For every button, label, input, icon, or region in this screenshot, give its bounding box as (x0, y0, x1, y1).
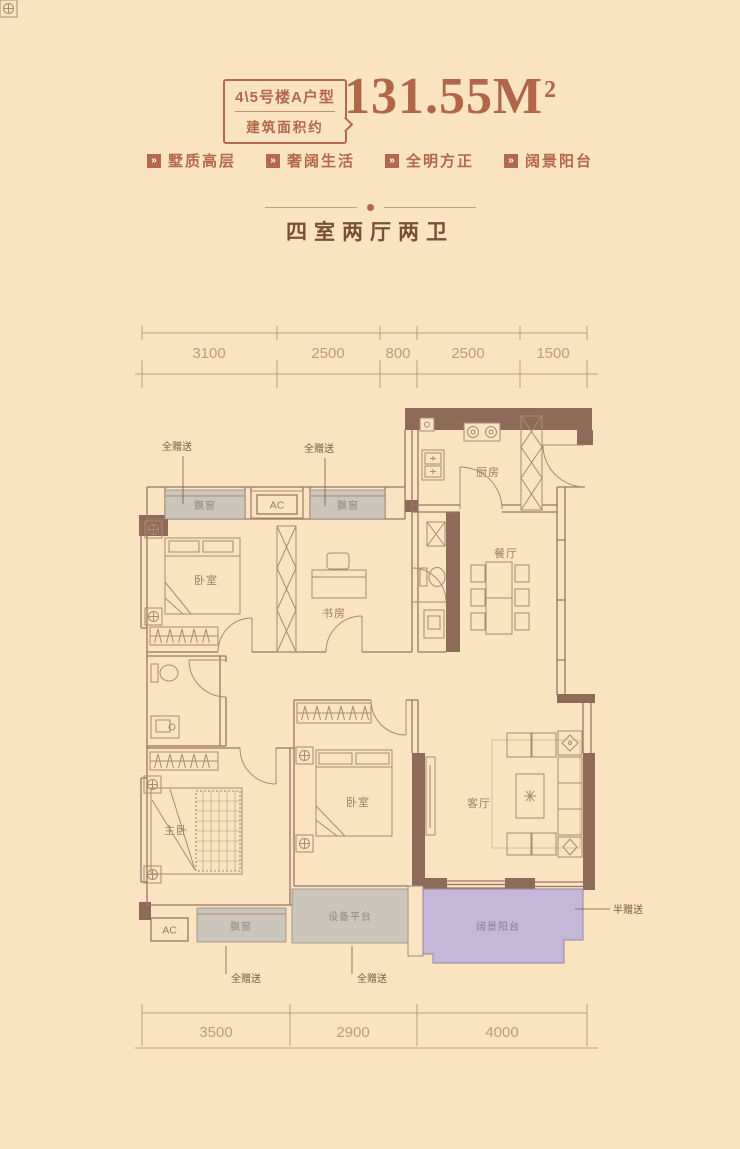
bathroom1-fixtures (420, 522, 445, 638)
vanity (424, 610, 444, 638)
plant-icon (524, 790, 536, 802)
wall-living-bottom-mid (505, 878, 535, 889)
bedroom2-label: 卧室 (346, 795, 370, 809)
ac-label: AC (162, 925, 177, 937)
bedroom2-furniture (297, 703, 392, 836)
bay-windows: 飘窗 飘窗 飘窗 设备平台 (165, 490, 408, 943)
ac-label: AC (270, 500, 285, 512)
chair (327, 553, 349, 569)
master-bedroom-label: 主卧 (164, 824, 188, 837)
bay-window-label: 飘窗 (194, 499, 216, 512)
living-label: 客厅 (467, 796, 491, 810)
entry-door (543, 445, 585, 487)
sofa-seat (507, 833, 531, 855)
toilet-tank (151, 664, 158, 682)
wall-bath1-right (446, 512, 460, 652)
study-furniture (312, 553, 366, 598)
balcony: 阔景阳台 (423, 889, 583, 963)
thick-walls (139, 408, 595, 920)
master-door (240, 748, 276, 784)
rug (492, 740, 580, 848)
wall-living-right (583, 753, 595, 890)
full-gift-label: 全赠送 (162, 440, 192, 453)
balcony-label: 阔景阳台 (476, 920, 520, 933)
bedroom2-door (371, 700, 406, 735)
toilet-bowl (429, 568, 445, 587)
dining-label: 餐厅 (494, 546, 518, 560)
wall-living-bottom-left (423, 878, 447, 889)
floor-plan: 3100 2500 800 2500 1500 3500 2900 4000 (0, 0, 740, 1149)
dining-set (471, 562, 529, 634)
sofa-seat (507, 733, 531, 757)
chair (515, 589, 529, 606)
wall-right-jog (557, 694, 595, 703)
study-door (326, 616, 362, 652)
wall-entry-corner (577, 430, 593, 445)
top-dimensions: 3100 2500 800 2500 1500 (135, 326, 598, 388)
half-gift-label: 半赠送 (613, 903, 643, 916)
balcony-pier (408, 886, 423, 956)
counter-corner (420, 418, 434, 431)
equipment-platform-label: 设备平台 (328, 910, 372, 923)
bottom-dimensions: 3500 2900 4000 (135, 1004, 598, 1048)
full-gift-label: 全赠送 (357, 972, 387, 985)
chair (515, 565, 529, 582)
dim-bottom-3: 4000 (485, 1024, 518, 1041)
chair (515, 613, 529, 630)
end-table (558, 837, 582, 857)
dim-top-1: 3100 (192, 345, 225, 362)
bed (316, 750, 392, 836)
sofa-long (558, 757, 582, 835)
full-gift-label: 全赠送 (304, 442, 334, 455)
dim-bottom-1: 3500 (199, 1024, 232, 1041)
wall-bedroom2-living (412, 753, 425, 886)
study-label: 书房 (322, 607, 346, 620)
dim-top-5: 1500 (536, 345, 569, 362)
living-furniture (426, 731, 582, 857)
dim-top-2: 2500 (311, 345, 344, 362)
dim-top-3: 800 (385, 345, 410, 362)
master-furniture (150, 752, 242, 874)
bathroom2-fixtures (151, 664, 179, 738)
page-background: { "header": { "badge_line1": "4\\5号楼A户型"… (0, 0, 740, 1149)
dim-top-4: 2500 (451, 345, 484, 362)
chair (471, 613, 485, 630)
chair (471, 589, 485, 606)
dim-bottom-2: 2900 (336, 1024, 369, 1041)
chair (471, 565, 485, 582)
bedroom1-door (218, 618, 252, 652)
sofa-seat (532, 733, 556, 757)
toilet-bowl (160, 665, 178, 681)
bedroom1-label: 卧室 (194, 573, 218, 587)
kitchen-label: 厨房 (476, 466, 500, 479)
full-gift-label: 全赠送 (231, 972, 261, 985)
sofa-seat (532, 833, 556, 855)
planter-symbols (0, 0, 313, 883)
bay-window-label: 飘窗 (337, 499, 359, 512)
desk (312, 570, 366, 598)
bay-window-label: 飘窗 (230, 920, 252, 933)
stove (464, 423, 500, 441)
